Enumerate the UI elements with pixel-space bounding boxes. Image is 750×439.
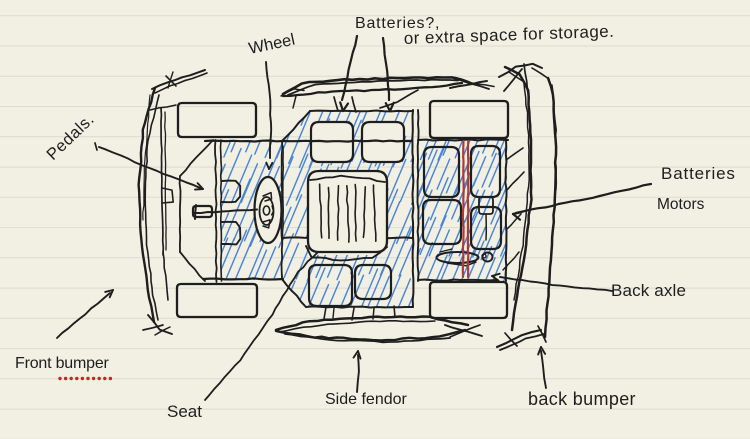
svg-text:Batteries: Batteries [661,164,736,183]
svg-text:back bumper: back bumper [528,389,636,409]
svg-text:Seat: Seat [167,402,202,421]
svg-text:Side fendor: Side fendor [325,391,408,408]
svg-text:Back axle: Back axle [611,281,686,300]
svg-text:Front bumper: Front bumper [15,355,110,372]
svg-text:Motors: Motors [657,196,705,213]
